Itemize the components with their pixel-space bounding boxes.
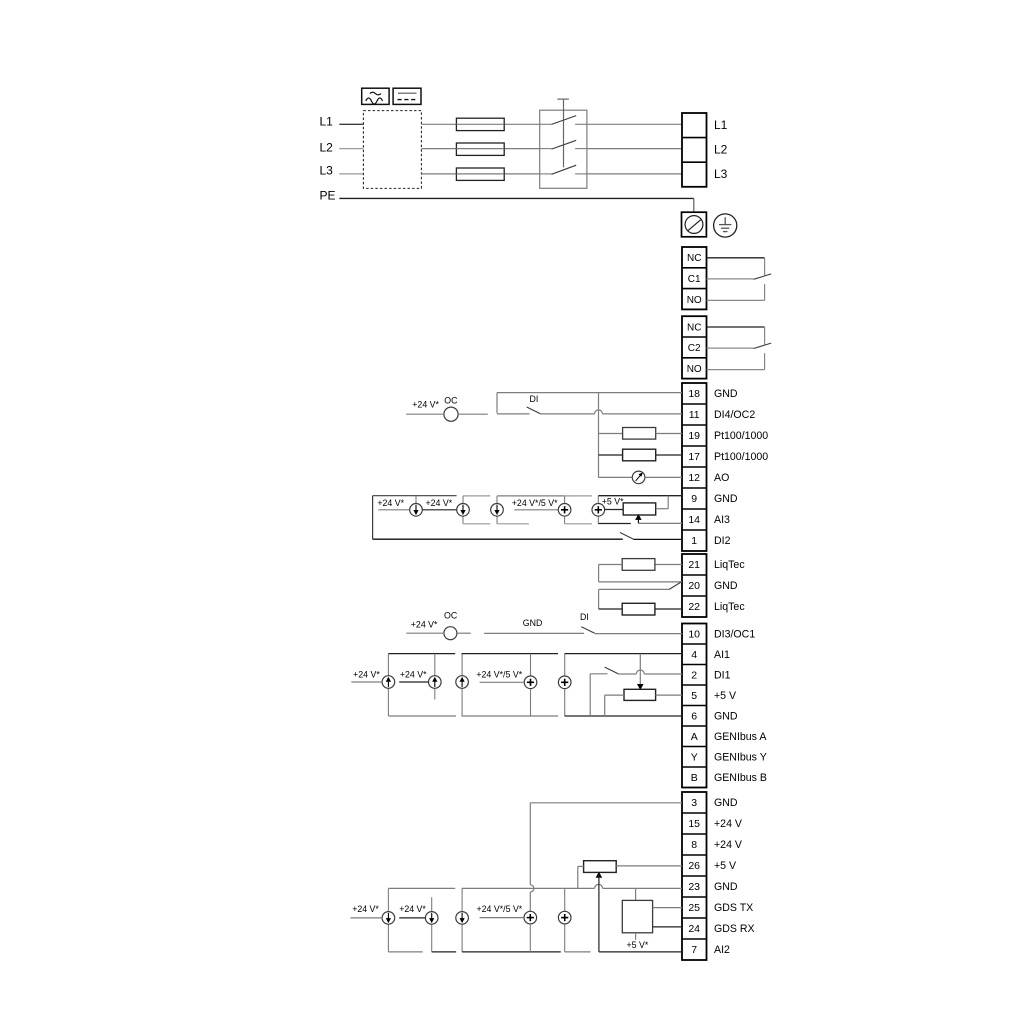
svg-text:AO: AO (714, 472, 729, 484)
svg-text:11: 11 (689, 409, 700, 421)
svg-text:GDS TX: GDS TX (714, 902, 753, 914)
svg-text:GENIbus Y: GENIbus Y (714, 751, 767, 763)
svg-text:24: 24 (688, 923, 700, 935)
svg-text:15: 15 (688, 818, 700, 830)
svg-text:AI3: AI3 (714, 514, 730, 526)
svg-text:GDS RX: GDS RX (714, 923, 755, 935)
svg-text:+5 V: +5 V (714, 690, 737, 702)
svg-text:GND: GND (714, 881, 738, 893)
svg-text:22: 22 (688, 601, 700, 613)
svg-text:GND: GND (523, 618, 543, 628)
svg-text:GND: GND (714, 493, 738, 505)
svg-text:NO: NO (687, 364, 702, 375)
svg-text:L1: L1 (320, 115, 334, 129)
svg-text:+24 V*: +24 V* (352, 904, 379, 914)
svg-text:DI: DI (580, 612, 589, 622)
svg-text:L3: L3 (320, 164, 334, 178)
svg-text:21: 21 (688, 559, 700, 571)
svg-text:+24 V*: +24 V* (377, 498, 404, 508)
svg-text:PE: PE (320, 189, 336, 203)
svg-text:10: 10 (688, 628, 700, 640)
svg-text:12: 12 (688, 472, 700, 484)
svg-text:Y: Y (691, 751, 698, 763)
svg-text:+5 V*: +5 V* (627, 940, 649, 950)
svg-text:+24 V*/5 V*: +24 V*/5 V* (476, 670, 522, 680)
svg-text:7: 7 (691, 944, 697, 956)
svg-text:DI1: DI1 (714, 669, 731, 681)
svg-text:5: 5 (691, 690, 697, 702)
svg-text:L1: L1 (714, 118, 728, 132)
svg-text:14: 14 (688, 514, 700, 526)
svg-text:+5 V*: +5 V* (602, 497, 624, 507)
svg-text:8: 8 (691, 839, 697, 851)
svg-text:L2: L2 (320, 141, 334, 155)
svg-text:26: 26 (688, 860, 700, 872)
svg-text:OC: OC (444, 611, 458, 621)
svg-text:Pt100/1000: Pt100/1000 (714, 430, 768, 442)
svg-text:+5 V: +5 V (714, 860, 737, 872)
svg-text:25: 25 (688, 902, 700, 914)
svg-text:L2: L2 (714, 143, 728, 157)
svg-text:DI: DI (530, 394, 539, 404)
svg-text:4: 4 (691, 649, 697, 661)
svg-text:+24 V*: +24 V* (411, 620, 438, 630)
svg-text:18: 18 (688, 388, 700, 400)
svg-text:+24 V*/5 V*: +24 V*/5 V* (512, 498, 558, 508)
svg-text:3: 3 (691, 797, 697, 809)
svg-text:+24 V*: +24 V* (426, 498, 453, 508)
svg-text:AI2: AI2 (714, 944, 730, 956)
svg-text:GND: GND (714, 710, 738, 722)
svg-text:6: 6 (691, 710, 697, 722)
svg-text:+24 V: +24 V (714, 818, 743, 830)
svg-text:9: 9 (691, 493, 697, 505)
svg-text:20: 20 (688, 580, 700, 592)
svg-text:NC: NC (687, 322, 701, 333)
svg-text:AI1: AI1 (714, 649, 730, 661)
svg-text:2: 2 (691, 669, 697, 681)
svg-text:OC: OC (444, 396, 458, 406)
svg-text:23: 23 (688, 881, 700, 893)
svg-text:L3: L3 (714, 167, 728, 181)
svg-text:+24 V: +24 V (714, 839, 743, 851)
svg-text:NO: NO (687, 295, 702, 306)
svg-text:+24 V*: +24 V* (400, 670, 427, 680)
svg-text:Pt100/1000: Pt100/1000 (714, 451, 768, 463)
svg-text:+24 V*: +24 V* (399, 904, 426, 914)
svg-text:LiqTec: LiqTec (714, 601, 745, 613)
svg-text:DI3/OC1: DI3/OC1 (714, 628, 755, 640)
svg-text:DI4/OC2: DI4/OC2 (714, 409, 755, 421)
svg-text:A: A (691, 731, 698, 743)
svg-text:19: 19 (688, 430, 700, 442)
svg-text:C1: C1 (688, 274, 701, 285)
svg-text:NC: NC (687, 253, 701, 264)
svg-text:1: 1 (691, 535, 697, 547)
svg-text:LiqTec: LiqTec (714, 559, 745, 571)
svg-text:GENIbus B: GENIbus B (714, 772, 767, 784)
svg-text:DI2: DI2 (714, 535, 731, 547)
svg-text:17: 17 (688, 451, 700, 463)
svg-text:GND: GND (714, 388, 738, 400)
svg-text:C2: C2 (688, 343, 701, 354)
svg-text:+24 V*/5 V*: +24 V*/5 V* (477, 904, 523, 914)
svg-text:+24 V*: +24 V* (353, 670, 380, 680)
svg-text:GND: GND (714, 580, 738, 592)
svg-text:B: B (691, 772, 698, 784)
svg-text:GENIbus A: GENIbus A (714, 731, 767, 743)
svg-text:+24 V*: +24 V* (412, 400, 439, 410)
svg-text:GND: GND (714, 797, 738, 809)
